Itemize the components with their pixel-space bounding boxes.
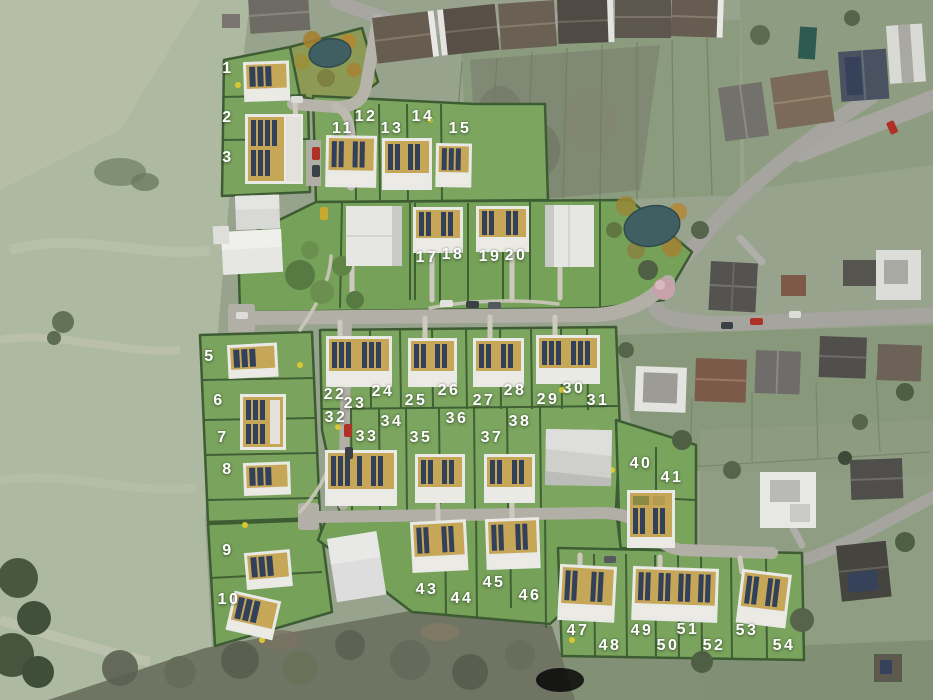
house-plots-2-3 bbox=[245, 114, 303, 184]
house-plot-1 bbox=[243, 60, 290, 102]
house-plots-53-54 bbox=[736, 569, 792, 629]
house-plots-47-48 bbox=[557, 564, 617, 623]
house-plots-13-14 bbox=[382, 138, 432, 190]
house-plot-5 bbox=[227, 342, 279, 379]
house-plots-32-34 bbox=[325, 450, 397, 506]
house-plots-6-7 bbox=[240, 394, 286, 450]
white-barn-south bbox=[327, 531, 386, 602]
house-plots-27-28 bbox=[473, 338, 524, 387]
white-building-row-c-left bbox=[346, 206, 402, 266]
house-plots-29-31 bbox=[536, 335, 600, 384]
aerial-site-plan: 1235678910111213141517181920222324252627… bbox=[0, 0, 933, 700]
barn-upper-west bbox=[235, 194, 280, 230]
house-plots-37-38 bbox=[484, 454, 535, 503]
house-plots-17-18 bbox=[413, 207, 463, 253]
house-plots-43-44 bbox=[410, 519, 469, 573]
house-plots-35-36 bbox=[415, 454, 465, 503]
grey-barn-central bbox=[545, 429, 612, 486]
garden-pool bbox=[798, 26, 817, 59]
house-plots-22-24 bbox=[326, 336, 392, 387]
house-plots-49-52 bbox=[631, 566, 719, 623]
site-plan-graphic bbox=[0, 0, 933, 700]
house-plot-15 bbox=[435, 143, 472, 188]
house-plots-25-26 bbox=[408, 338, 457, 387]
barn-lower-west bbox=[213, 223, 283, 275]
house-plots-45-46 bbox=[485, 517, 541, 570]
house-plots-40-41 bbox=[627, 490, 675, 548]
house-plots-19-20 bbox=[476, 206, 529, 252]
house-plot-8 bbox=[243, 461, 291, 496]
house-plot-9 bbox=[244, 549, 293, 590]
house-plots-11-12 bbox=[325, 135, 377, 188]
white-building-row-c-right bbox=[545, 205, 594, 267]
